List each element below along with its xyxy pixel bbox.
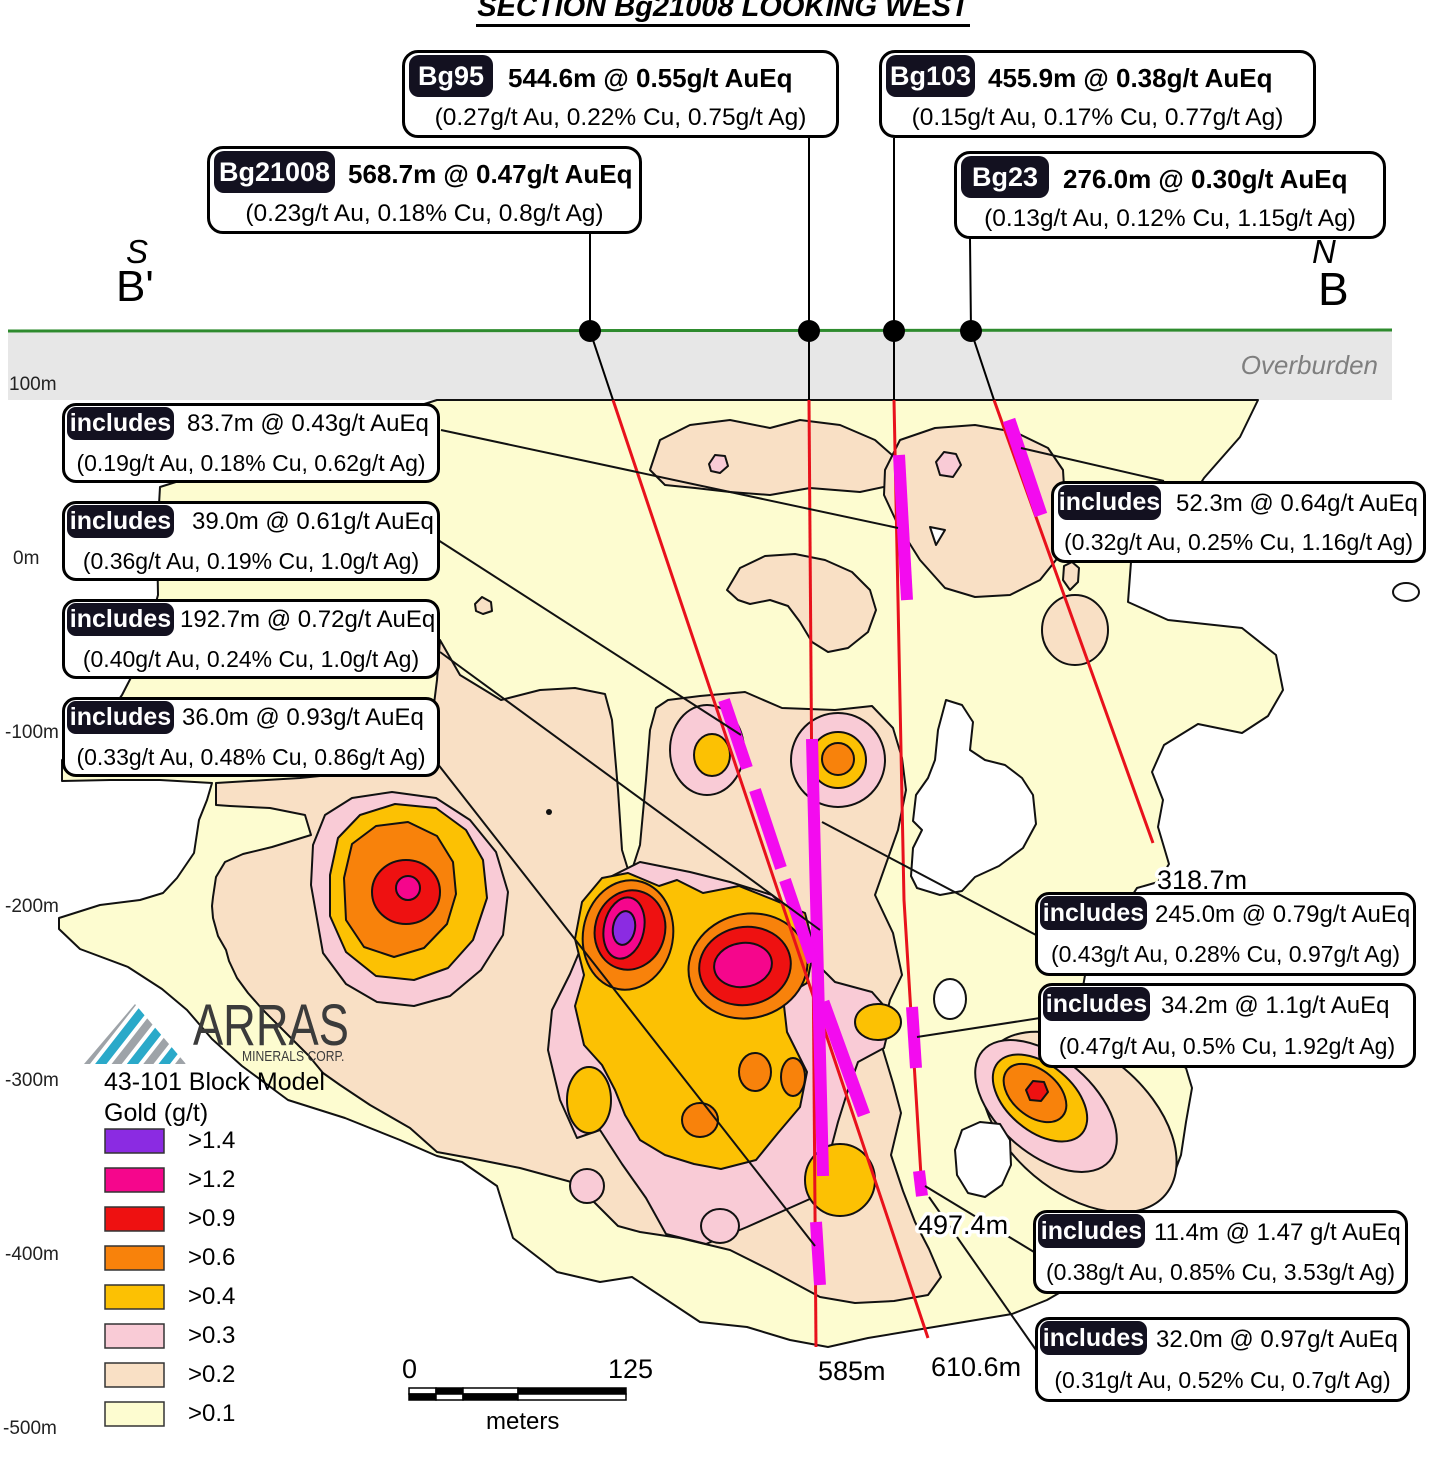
svg-text:585m: 585m [818, 1356, 886, 1386]
svg-text:318.7m: 318.7m [1157, 865, 1247, 895]
svg-text:497.4m: 497.4m [918, 1210, 1008, 1240]
svg-text:610.6m: 610.6m [931, 1352, 1021, 1382]
